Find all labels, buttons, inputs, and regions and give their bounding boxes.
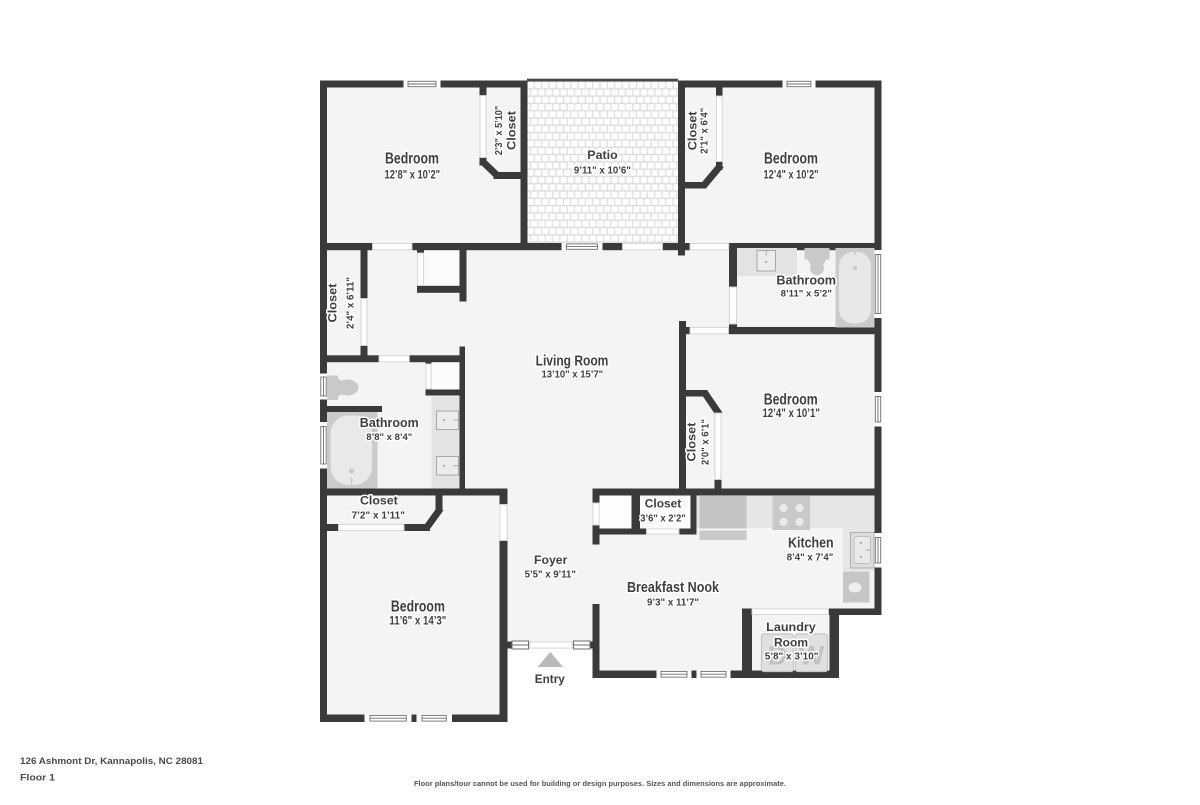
svg-text:2’1" x 6’4": 2’1" x 6’4": [700, 108, 711, 154]
svg-text:5’5" x 9’11": 5’5" x 9’11": [525, 570, 577, 581]
svg-text:2’4" x 6’11": 2’4" x 6’11": [346, 277, 357, 329]
svg-text:Closet: Closet: [686, 111, 700, 150]
svg-text:12’4" x 10’1": 12’4" x 10’1": [762, 406, 820, 420]
svg-text:Room: Room: [774, 636, 808, 650]
svg-text:Kitchen: Kitchen: [788, 536, 834, 552]
svg-text:Foyer: Foyer: [534, 553, 568, 567]
svg-text:Laundry: Laundry: [766, 620, 816, 634]
svg-text:5’8" x 3’10": 5’8" x 3’10": [765, 651, 819, 662]
svg-text:11’6" x 14’3": 11’6" x 14’3": [389, 614, 446, 628]
svg-text:8’11" x 5’2": 8’11" x 5’2": [781, 289, 832, 300]
svg-text:9’11" x 10’6": 9’11" x 10’6": [574, 166, 631, 177]
svg-text:8’4" x 7’4": 8’4" x 7’4": [787, 553, 834, 564]
svg-text:Bathroom: Bathroom: [776, 272, 836, 287]
svg-text:Bathroom: Bathroom: [360, 415, 419, 430]
svg-text:3’6" x 2’2": 3’6" x 2’2": [640, 514, 686, 525]
svg-text:2’0" x 6’1": 2’0" x 6’1": [701, 419, 712, 465]
svg-text:Floor 1: Floor 1: [20, 773, 56, 784]
svg-text:12’8" x 10’2": 12’8" x 10’2": [385, 167, 441, 181]
svg-text:2’3" x 5’10": 2’3" x 5’10": [494, 106, 505, 156]
svg-text:Floor plans/tour cannot be use: Floor plans/tour cannot be used for buil…: [414, 779, 786, 788]
svg-text:13’10" x 15’7": 13’10" x 15’7": [541, 369, 603, 380]
svg-text:9’3" x 11’7": 9’3" x 11’7": [647, 597, 699, 608]
svg-text:Breakfast Nook: Breakfast Nook: [627, 580, 720, 596]
svg-text:126 Ashmont Dr, Kannapolis, NC: 126 Ashmont Dr, Kannapolis, NC 28081: [20, 756, 204, 767]
svg-text:Closet: Closet: [360, 493, 398, 507]
svg-text:12’4" x 10’2": 12’4" x 10’2": [764, 167, 819, 181]
svg-text:Closet: Closet: [685, 423, 699, 462]
svg-text:Bedroom: Bedroom: [385, 151, 439, 168]
svg-text:Bedroom: Bedroom: [764, 151, 818, 168]
svg-text:Living Room: Living Room: [536, 354, 609, 370]
svg-text:Patio: Patio: [587, 150, 617, 162]
svg-text:7’2" x 1’11": 7’2" x 1’11": [352, 511, 406, 522]
svg-text:Closet: Closet: [326, 284, 340, 323]
svg-text:8’8" x 8’4": 8’8" x 8’4": [366, 432, 412, 443]
svg-text:Closet: Closet: [645, 497, 681, 511]
svg-text:Entry: Entry: [535, 674, 566, 686]
svg-text:Closet: Closet: [505, 111, 519, 150]
